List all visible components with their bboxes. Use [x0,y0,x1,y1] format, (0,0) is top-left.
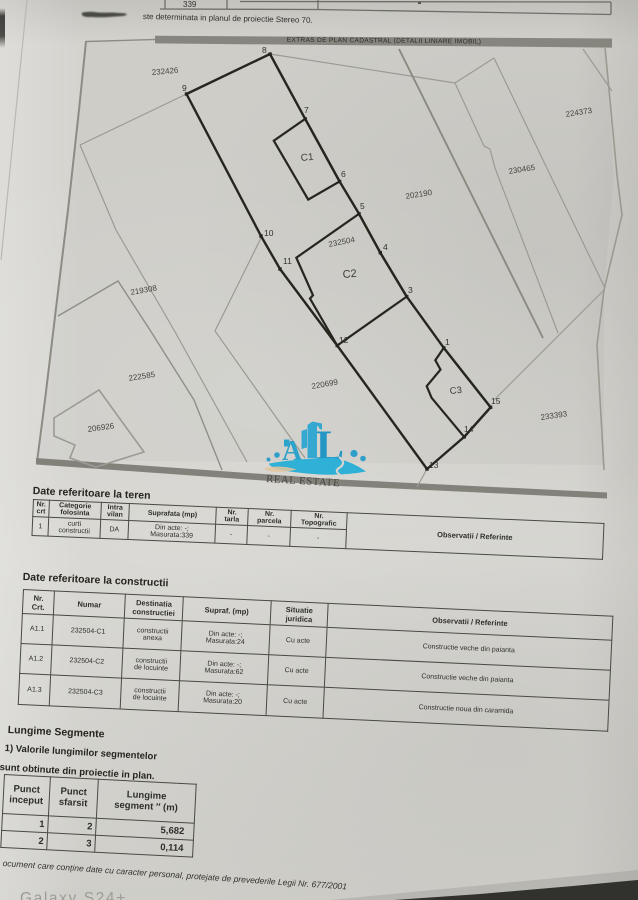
svg-text:C1: C1 [300,152,314,164]
svg-text:9: 9 [182,83,187,93]
svg-text:C2: C2 [342,268,357,281]
svg-text:13: 13 [429,460,439,470]
svg-text:5: 5 [360,201,365,211]
svg-text:8: 8 [262,45,267,55]
svg-text:1: 1 [445,337,450,347]
svg-text:6: 6 [341,169,346,179]
svg-text:REAL ESTATE: REAL ESTATE [266,473,341,489]
svg-text:C3: C3 [449,385,462,397]
svg-text:3: 3 [408,285,413,295]
svg-text:7: 7 [304,105,309,115]
svg-text:14: 14 [464,424,474,434]
svg-text:12: 12 [339,335,349,345]
svg-text:4: 4 [383,242,388,252]
svg-text:10: 10 [264,228,274,238]
svg-text:15: 15 [491,396,501,406]
svg-text:11: 11 [283,256,292,266]
